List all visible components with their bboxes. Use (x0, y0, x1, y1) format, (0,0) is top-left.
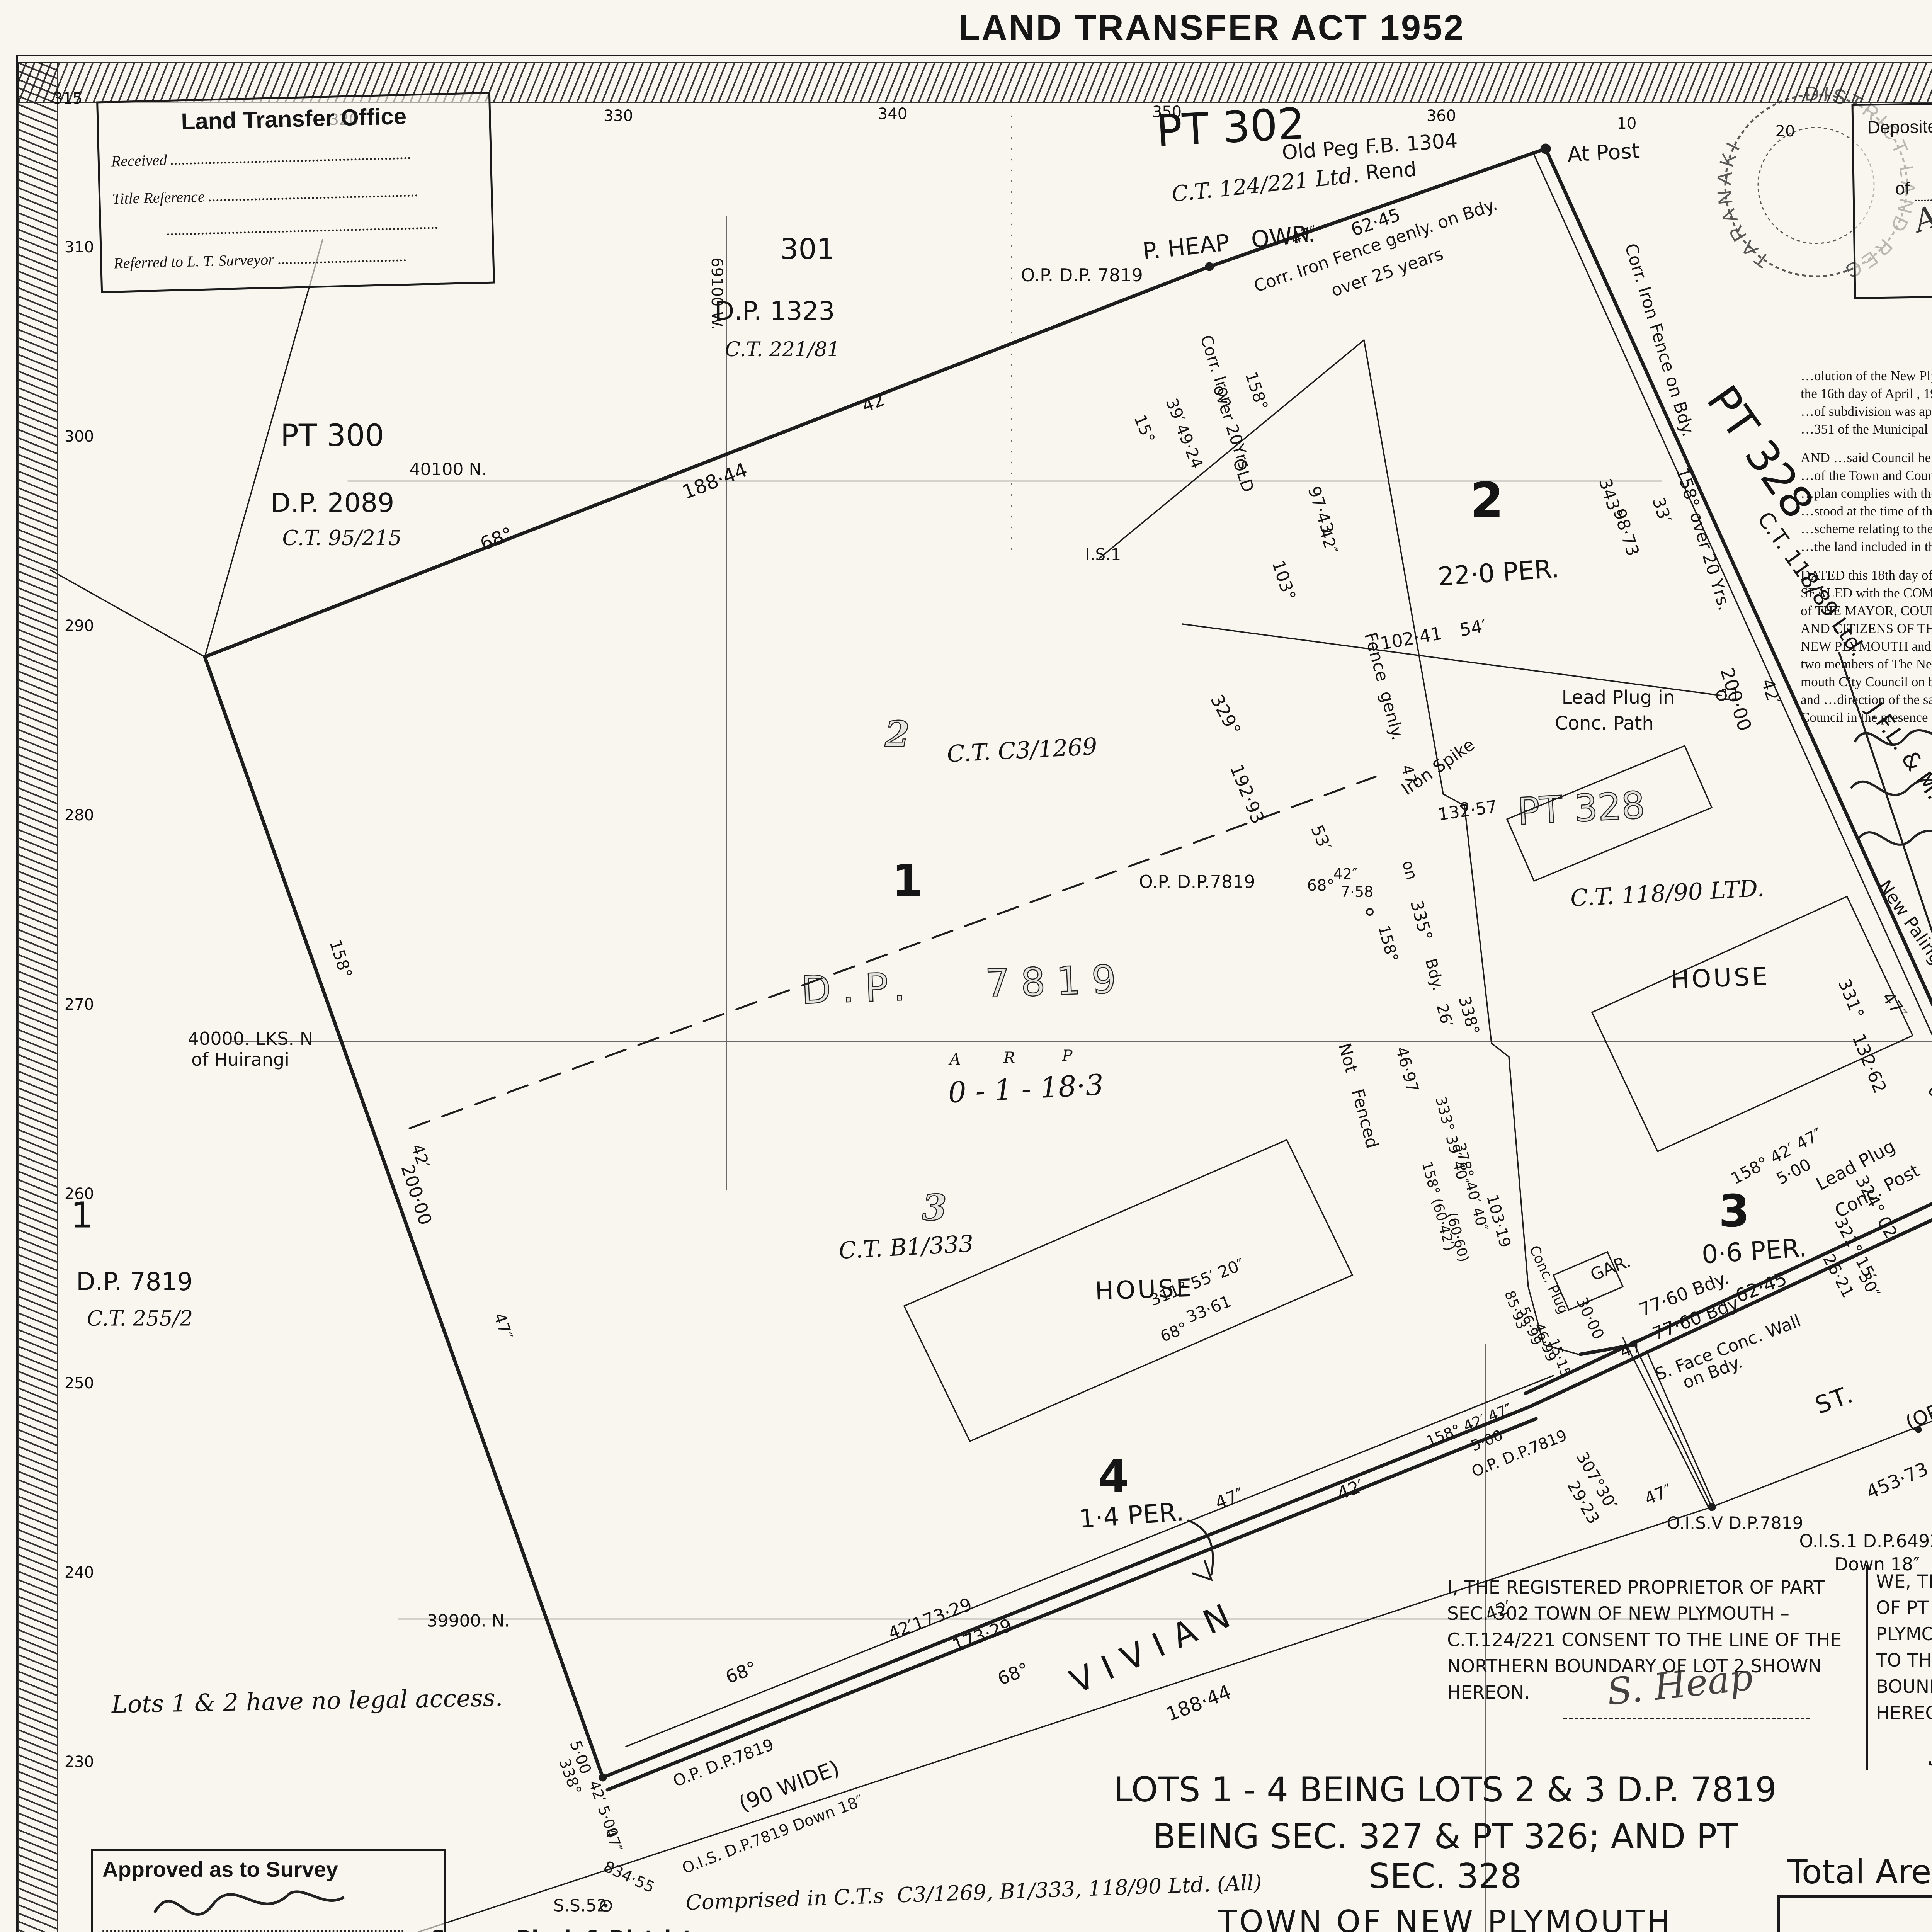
consent-line: SEC. 302 TOWN OF NEW PLYMOUTH – (1447, 1601, 1857, 1627)
plan-label: New Paling Fence (1874, 876, 1932, 1016)
plan-label: 54′ (1458, 615, 1488, 640)
plan-label: Conc. Path (1555, 713, 1654, 734)
plan-label: C.T. 221/81 (725, 338, 840, 361)
plan-label: 69100 W. (708, 257, 726, 330)
plan-label: C.T. 118/90 LTD. (1570, 875, 1765, 912)
plan-label: 46·97 (1392, 1045, 1422, 1095)
plan-label: 11 (1721, 686, 1740, 704)
plan-label: C.T. 255/2 (87, 1306, 193, 1331)
plan-label: D.P. 2089 (270, 488, 395, 519)
consent-line: I, THE REGISTERED PROPRIETOR OF PART (1447, 1575, 1857, 1601)
plan-label: O.I.S.1 D.P.6492 (1799, 1531, 1932, 1551)
plan-label: O.P. D.P.7819 (670, 1735, 776, 1791)
plan-label: 40000. LKS. N (188, 1028, 313, 1049)
plan-label: 329° (1206, 691, 1245, 738)
plan-label: 331° (1834, 976, 1868, 1021)
plan-label: 188·44 (1163, 1681, 1234, 1726)
plan-label: 1 (892, 855, 923, 907)
plan-label: 158° over 20 Yrs. (1672, 465, 1734, 613)
plan-label: 26′ (1433, 1002, 1456, 1029)
plan-label: 39′ (1162, 396, 1189, 425)
consent-left: I, THE REGISTERED PROPRIETOR OF PARTSEC.… (1447, 1575, 1857, 1719)
plan-label: R (1003, 1049, 1015, 1067)
plan-label: 3 (1719, 1185, 1750, 1237)
plan-label: 158° (1374, 923, 1401, 964)
plan-label: 68° (723, 1657, 759, 1688)
plan-label: 102·41 (1379, 622, 1444, 654)
plan-label: C.T. C3/1269 (946, 733, 1098, 768)
approved-box: Approved B Goodare. J Mitchell B.G. Good… (1777, 1895, 1932, 1932)
plan-label: 42′ (1757, 677, 1784, 707)
plan-label: 47″ (1617, 1333, 1650, 1362)
plan-label: ST. (1811, 1379, 1858, 1419)
plan-label: 42″ (1333, 866, 1358, 883)
plan-label: C.T. 118/89 Ltd. (1752, 507, 1871, 662)
plan-label: Corr. Iron Fence on Bdy. (1621, 241, 1699, 439)
plan-label: 2 (885, 713, 910, 755)
plan-label: 1·4 PER. (1078, 1497, 1185, 1534)
plan-label: O.P. D.P. 7819 (1021, 265, 1143, 286)
consent-line: BOUNDARY OF LOT 2 SHOWN (1876, 1674, 1932, 1700)
consent-line: HEREON. (1876, 1700, 1932, 1726)
plan-label: genly. (1376, 689, 1408, 742)
plan-label: 103° (1268, 558, 1299, 603)
title-block: LOTS 1 - 4 BEING LOTS 2 & 3 D.P. 7819 BE… (1113, 1770, 1777, 1932)
plan-label: Lots 1 & 2 have no legal access. (111, 1684, 503, 1719)
plan-label: 335° (1406, 898, 1436, 943)
plan-label: Rend (1365, 158, 1417, 184)
survey-box-title: Approved as to Survey (102, 1857, 435, 1882)
plan-label: P. HEAP OWR. (1141, 220, 1316, 265)
plan-label: 47″ (1212, 1483, 1247, 1514)
plan-label: PT 328 (1516, 783, 1646, 833)
plan-label: At Post (1567, 139, 1640, 167)
plan-label: C.T. 124/221 Ltd. (1170, 162, 1360, 207)
plan-label: 68° (995, 1658, 1031, 1689)
plan-label: 53′ (1307, 822, 1335, 853)
total-area: Total Area : 0-2-02·3 (1787, 1853, 1932, 1891)
plan-label: C.T. 95/215 (282, 526, 402, 550)
plan-label: 2 (1470, 473, 1504, 529)
plan-label: 62·45 (1733, 1268, 1790, 1307)
plan-label: 47″ (1642, 1480, 1675, 1509)
plan-label: 188·44 (679, 459, 750, 504)
plan-label: 40100 N. (410, 460, 487, 480)
plan-label: 3 (922, 1187, 947, 1228)
plan-label: D.P. 1323 (714, 296, 835, 326)
plan-label: PT 328 (1697, 377, 1823, 527)
consent-divider (1866, 1565, 1868, 1770)
plan-label: 132·57 (1437, 797, 1498, 825)
plan-label: on (1398, 859, 1420, 882)
plan-label: 22·0 PER. (1437, 554, 1560, 592)
consent-line: OF PT SEC. 328 TOWN OF NEW (1876, 1595, 1932, 1621)
plan-label: 68° (1158, 1319, 1190, 1345)
consent-right: WE, THE REGISTERED PROPRIETORSOF PT SEC.… (1876, 1569, 1932, 1814)
consent-line: WE, THE REGISTERED PROPRIETORS (1876, 1569, 1932, 1595)
plan-label: 0·6 PER. (1701, 1233, 1808, 1270)
plan-label: 47″ (602, 1826, 626, 1854)
consent-line: TO THE LINE OF THE EASTERN (1876, 1648, 1932, 1674)
plan-label: Not (1334, 1041, 1361, 1075)
survey-plan-sheet: 3153203303403503601020304045310300290280… (0, 0, 1932, 1932)
plan-label: (ORIGIN) (1902, 1381, 1932, 1434)
plan-label: P (1062, 1047, 1073, 1065)
plan-label: 42′ (1334, 1475, 1367, 1504)
plan-label: 68° (477, 523, 515, 555)
plan-label: 7·58 (1341, 883, 1374, 900)
plan-label: HOUSE (1670, 963, 1770, 995)
title-line-2: BEING SEC. 327 & PT 326; AND PT SEC. 328 (1113, 1816, 1777, 1896)
plan-label: 301 (780, 233, 835, 266)
plan-label: Conc. Plug (1526, 1243, 1571, 1316)
plan-label: 42′ (859, 387, 891, 416)
plan-label: 132·62 (1848, 1031, 1891, 1096)
plan-label: 173·29 (949, 1614, 1015, 1656)
plan-label: GAR. (1588, 1251, 1633, 1285)
chief-surveyor-signature (149, 1882, 350, 1928)
plan-label: A (950, 1051, 961, 1068)
plan-label: of Huirangi (191, 1049, 289, 1070)
plan-label: O.I.S.V D.P.7819 (1667, 1514, 1803, 1533)
plan-label: I.S.1 (1085, 545, 1121, 564)
plan-label: 200·00 (397, 1162, 436, 1228)
plan-label: Bdy. (1422, 957, 1447, 993)
plan-label: D.P. 7819 (76, 1268, 193, 1296)
plan-label: Fenced (1347, 1087, 1382, 1151)
plan-label: 834·55 (601, 1858, 657, 1897)
title-line-1: LOTS 1 - 4 BEING LOTS 2 & 3 D.P. 7819 (1113, 1770, 1777, 1810)
plan-label: D.P. 7819 (801, 956, 1128, 1013)
approved-title: Approved (1780, 1901, 1932, 1931)
consent-left-sigline (1563, 1718, 1810, 1719)
plan-label: 4 (1098, 1451, 1129, 1503)
plan-label: 1 (71, 1195, 94, 1236)
survey-approval-box: Approved as to Survey Chief Surveyor 17,… (91, 1849, 446, 1932)
plan-label: 30·00 (1573, 1294, 1607, 1342)
plan-label: O.P. D.P.7819 (1139, 871, 1255, 892)
plan-label: 39900. N. (427, 1611, 510, 1631)
plan-label: PT 300 (281, 418, 384, 453)
survey-block-label: Survey Block & District (431, 1927, 692, 1932)
consent-line: PLYMOUTH – C.T. 118/89 CONSENT (1876, 1621, 1932, 1648)
plan-label: 192·93 (1226, 761, 1269, 827)
plan-label: 47″ (1878, 988, 1910, 1023)
plan-label: S.S.52 (553, 1896, 607, 1916)
plan-label: 453·73 (1863, 1458, 1931, 1503)
plan-label: 15° (1130, 412, 1158, 446)
plan-label: 0·4 W. (1923, 1081, 1932, 1136)
plan-label: OLD (1229, 456, 1258, 495)
plan-label: 158° (326, 937, 356, 980)
plan-label: 0 - 1 - 18·3 (947, 1068, 1105, 1110)
consent-line: C.T.124/221 CONSENT TO THE LINE OF THE (1447, 1627, 1857, 1653)
plan-label: 98·73 (1609, 506, 1643, 559)
plan-label: 33′ (1648, 495, 1675, 526)
plan-label: 158° (1242, 369, 1272, 412)
plan-label: Old Peg F.B. 1304 (1281, 129, 1458, 165)
plan-label: 47″ (490, 1311, 516, 1342)
form-area: Survey Block & District Land District TA… (431, 1917, 1760, 1932)
plan-label: 68° (1307, 877, 1335, 895)
plan-label: 173·29 (909, 1594, 975, 1635)
plan-label: C.T. B1/333 (838, 1230, 974, 1264)
plan-label: 49·24 (1172, 421, 1207, 471)
plan-label: 338° (1455, 994, 1483, 1037)
plan-label: Lead Plug in (1562, 687, 1675, 708)
